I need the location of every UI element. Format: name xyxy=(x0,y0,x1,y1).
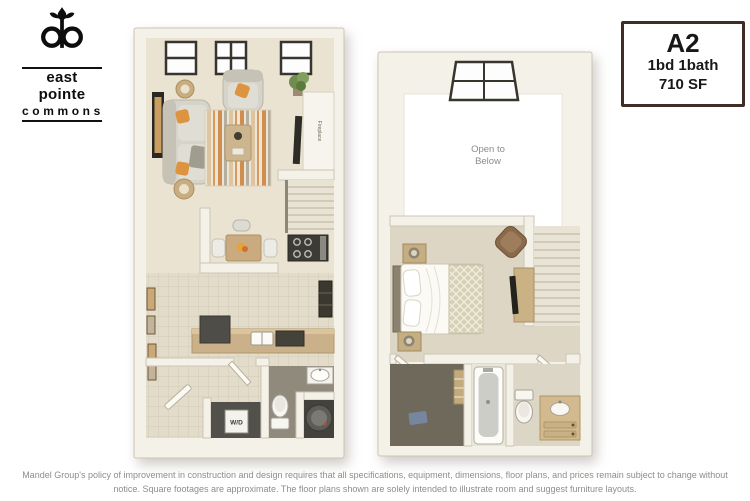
bedroom-wall-top xyxy=(390,216,524,226)
bed xyxy=(393,264,483,334)
plan-info-box: A2 1bd 1bath 710 SF xyxy=(621,21,745,107)
bathtub-room xyxy=(472,364,506,446)
duvet xyxy=(449,265,483,333)
toilet xyxy=(271,395,289,429)
bathroom-sink xyxy=(307,367,333,384)
wall-art-icon xyxy=(152,92,164,158)
plan-code: A2 xyxy=(624,30,742,57)
dining-wall-bottom xyxy=(200,263,278,273)
range-stove xyxy=(288,235,328,261)
disclaimer-text: Mandel Group's policy of improvement in … xyxy=(18,469,732,497)
closet-tub-wall xyxy=(464,364,472,446)
armchair xyxy=(223,70,263,112)
brand-logo: east pointe commons xyxy=(22,6,102,122)
second-floor-plan: Open to Below xyxy=(376,50,596,460)
plan-bed-bath: 1bd 1bath xyxy=(624,57,742,76)
fireplace-label: Fireplace xyxy=(316,121,322,142)
brand-name-line2: commons xyxy=(22,104,102,122)
stairs-first-floor xyxy=(285,180,334,233)
washer-dryer-label: W/D xyxy=(230,420,243,427)
water-heater-closet xyxy=(296,392,334,438)
hall-wall-stub xyxy=(256,358,269,366)
closet-floor-item xyxy=(408,411,427,425)
dishwasher xyxy=(276,331,304,346)
kitchen-wall-window xyxy=(319,281,332,317)
closet-shelves xyxy=(454,370,464,404)
sofa xyxy=(163,100,210,184)
stairs-second-floor xyxy=(534,226,580,326)
toilet-2f xyxy=(515,390,533,400)
first-floor-plan: Fireplace xyxy=(128,26,346,462)
bath-wall-seg2 xyxy=(424,354,538,364)
brand-name-line1: east pointe xyxy=(22,70,102,103)
open-to-below-label-line1: Open to xyxy=(471,144,505,155)
vanity-sink xyxy=(540,396,580,440)
tub-toilet-wall xyxy=(506,364,514,446)
walk-in-closet xyxy=(390,364,464,446)
hall-wall xyxy=(146,358,234,366)
ep-monogram-icon xyxy=(35,6,89,64)
plan-square-feet: 710 SF xyxy=(624,76,742,95)
living-room-windows xyxy=(166,42,311,74)
toilet-vanity-room xyxy=(514,364,580,446)
refrigerator xyxy=(200,316,230,343)
open-to-below-label-line2: Below xyxy=(475,156,501,167)
bath-wall-seg3 xyxy=(566,354,580,364)
loft-window xyxy=(450,62,518,100)
floorplan-sheet: east pointe commons A2 1bd 1bath 710 SF xyxy=(0,0,750,501)
laundry-closet: W/D xyxy=(203,398,261,438)
dresser-tv xyxy=(509,268,534,322)
coffee-table xyxy=(225,125,251,161)
stair-wall xyxy=(278,170,334,180)
bathroom-wall xyxy=(261,366,269,438)
